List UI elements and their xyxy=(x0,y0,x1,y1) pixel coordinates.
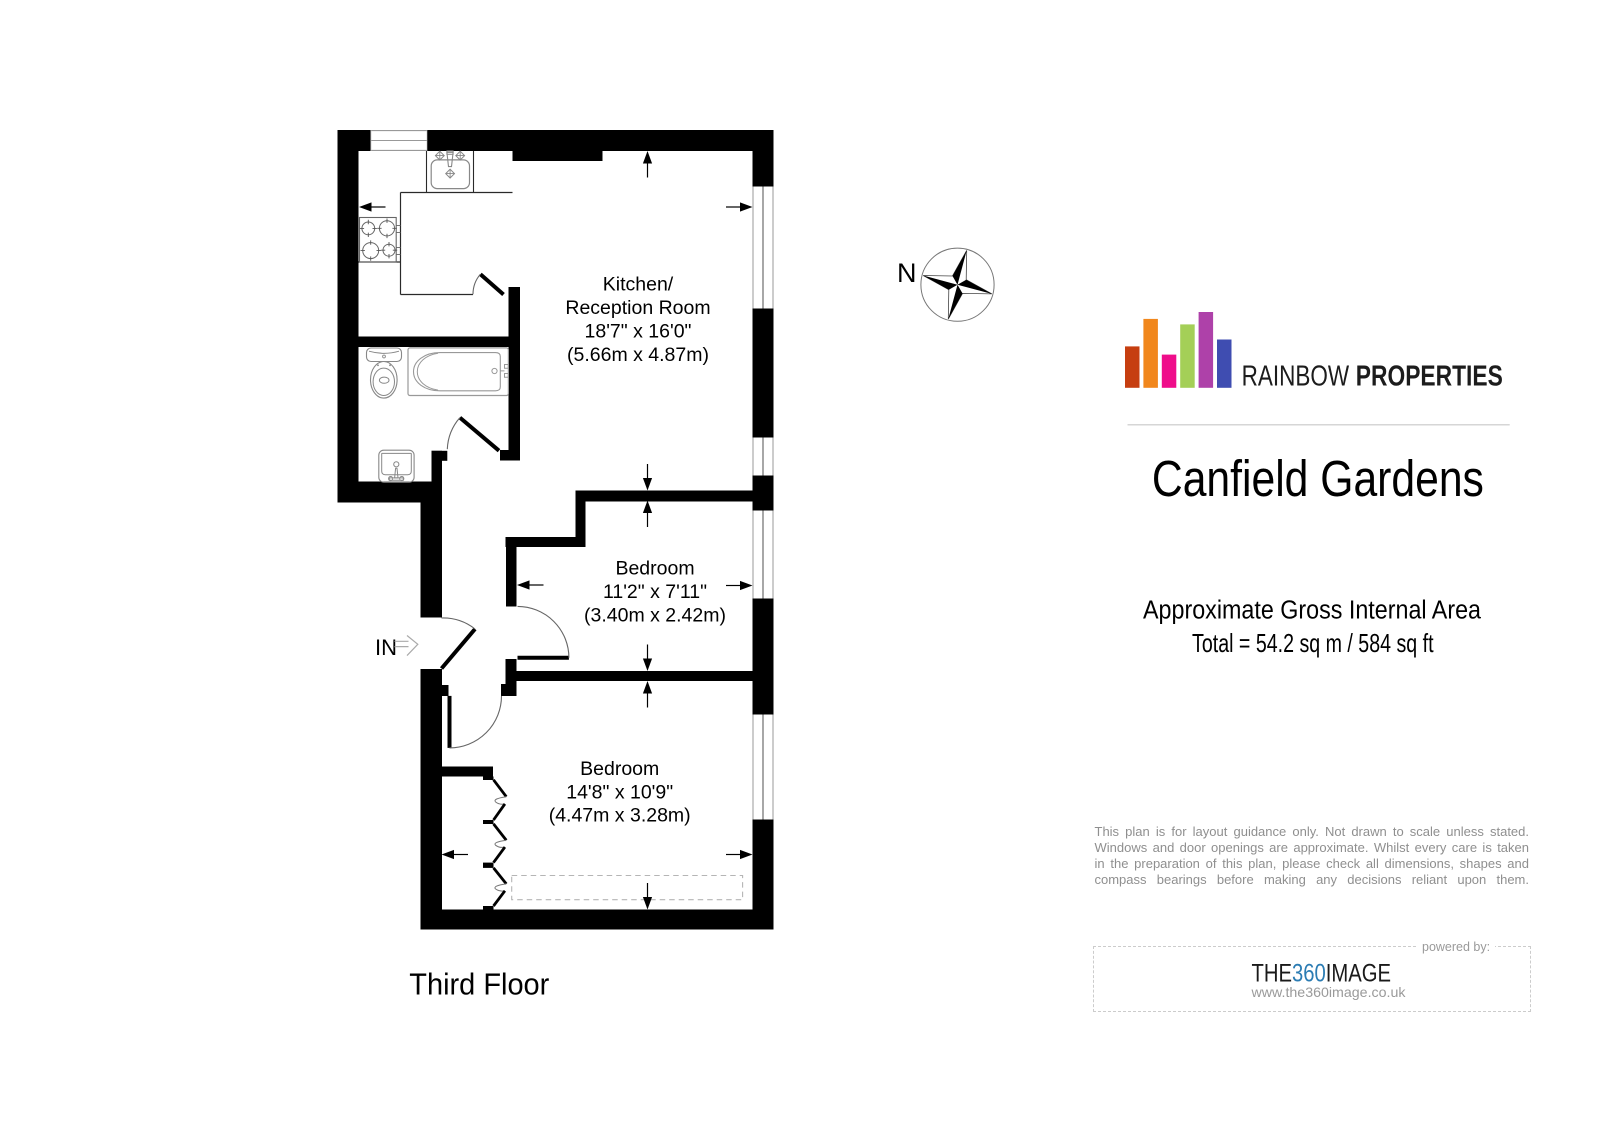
svg-text:Approximate Gross Internal Are: Approximate Gross Internal Area xyxy=(1143,597,1482,625)
svg-text:RAINBOW: RAINBOW xyxy=(1242,361,1350,393)
svg-text:Kitchen/: Kitchen/ xyxy=(603,274,674,296)
svg-text:(4.47m x 3.28m): (4.47m x 3.28m) xyxy=(549,805,691,827)
svg-text:IN: IN xyxy=(375,635,397,660)
svg-text:N: N xyxy=(897,258,917,288)
svg-text:www.the360image.co.uk: www.the360image.co.uk xyxy=(1250,984,1406,1000)
svg-text:18'7" x 16'0": 18'7" x 16'0" xyxy=(585,321,692,343)
svg-text:(5.66m x 4.87m): (5.66m x 4.87m) xyxy=(567,344,709,366)
svg-text:(3.40m x 2.42m): (3.40m x 2.42m) xyxy=(584,605,726,627)
svg-text:Bedroom: Bedroom xyxy=(580,758,659,780)
svg-text:PROPERTIES: PROPERTIES xyxy=(1356,361,1503,393)
svg-text:Canfield Gardens: Canfield Gardens xyxy=(1152,450,1484,507)
svg-text:11'2" x 7'11": 11'2" x 7'11" xyxy=(603,581,707,603)
svg-text:Bedroom: Bedroom xyxy=(615,558,694,580)
svg-text:Total = 54.2 sq m / 584 sq ft: Total = 54.2 sq m / 584 sq ft xyxy=(1192,628,1434,658)
svg-text:14'8" x 10'9": 14'8" x 10'9" xyxy=(566,781,673,803)
svg-text:Reception Room: Reception Room xyxy=(565,297,710,319)
svg-text:Third Floor: Third Floor xyxy=(409,968,549,1002)
